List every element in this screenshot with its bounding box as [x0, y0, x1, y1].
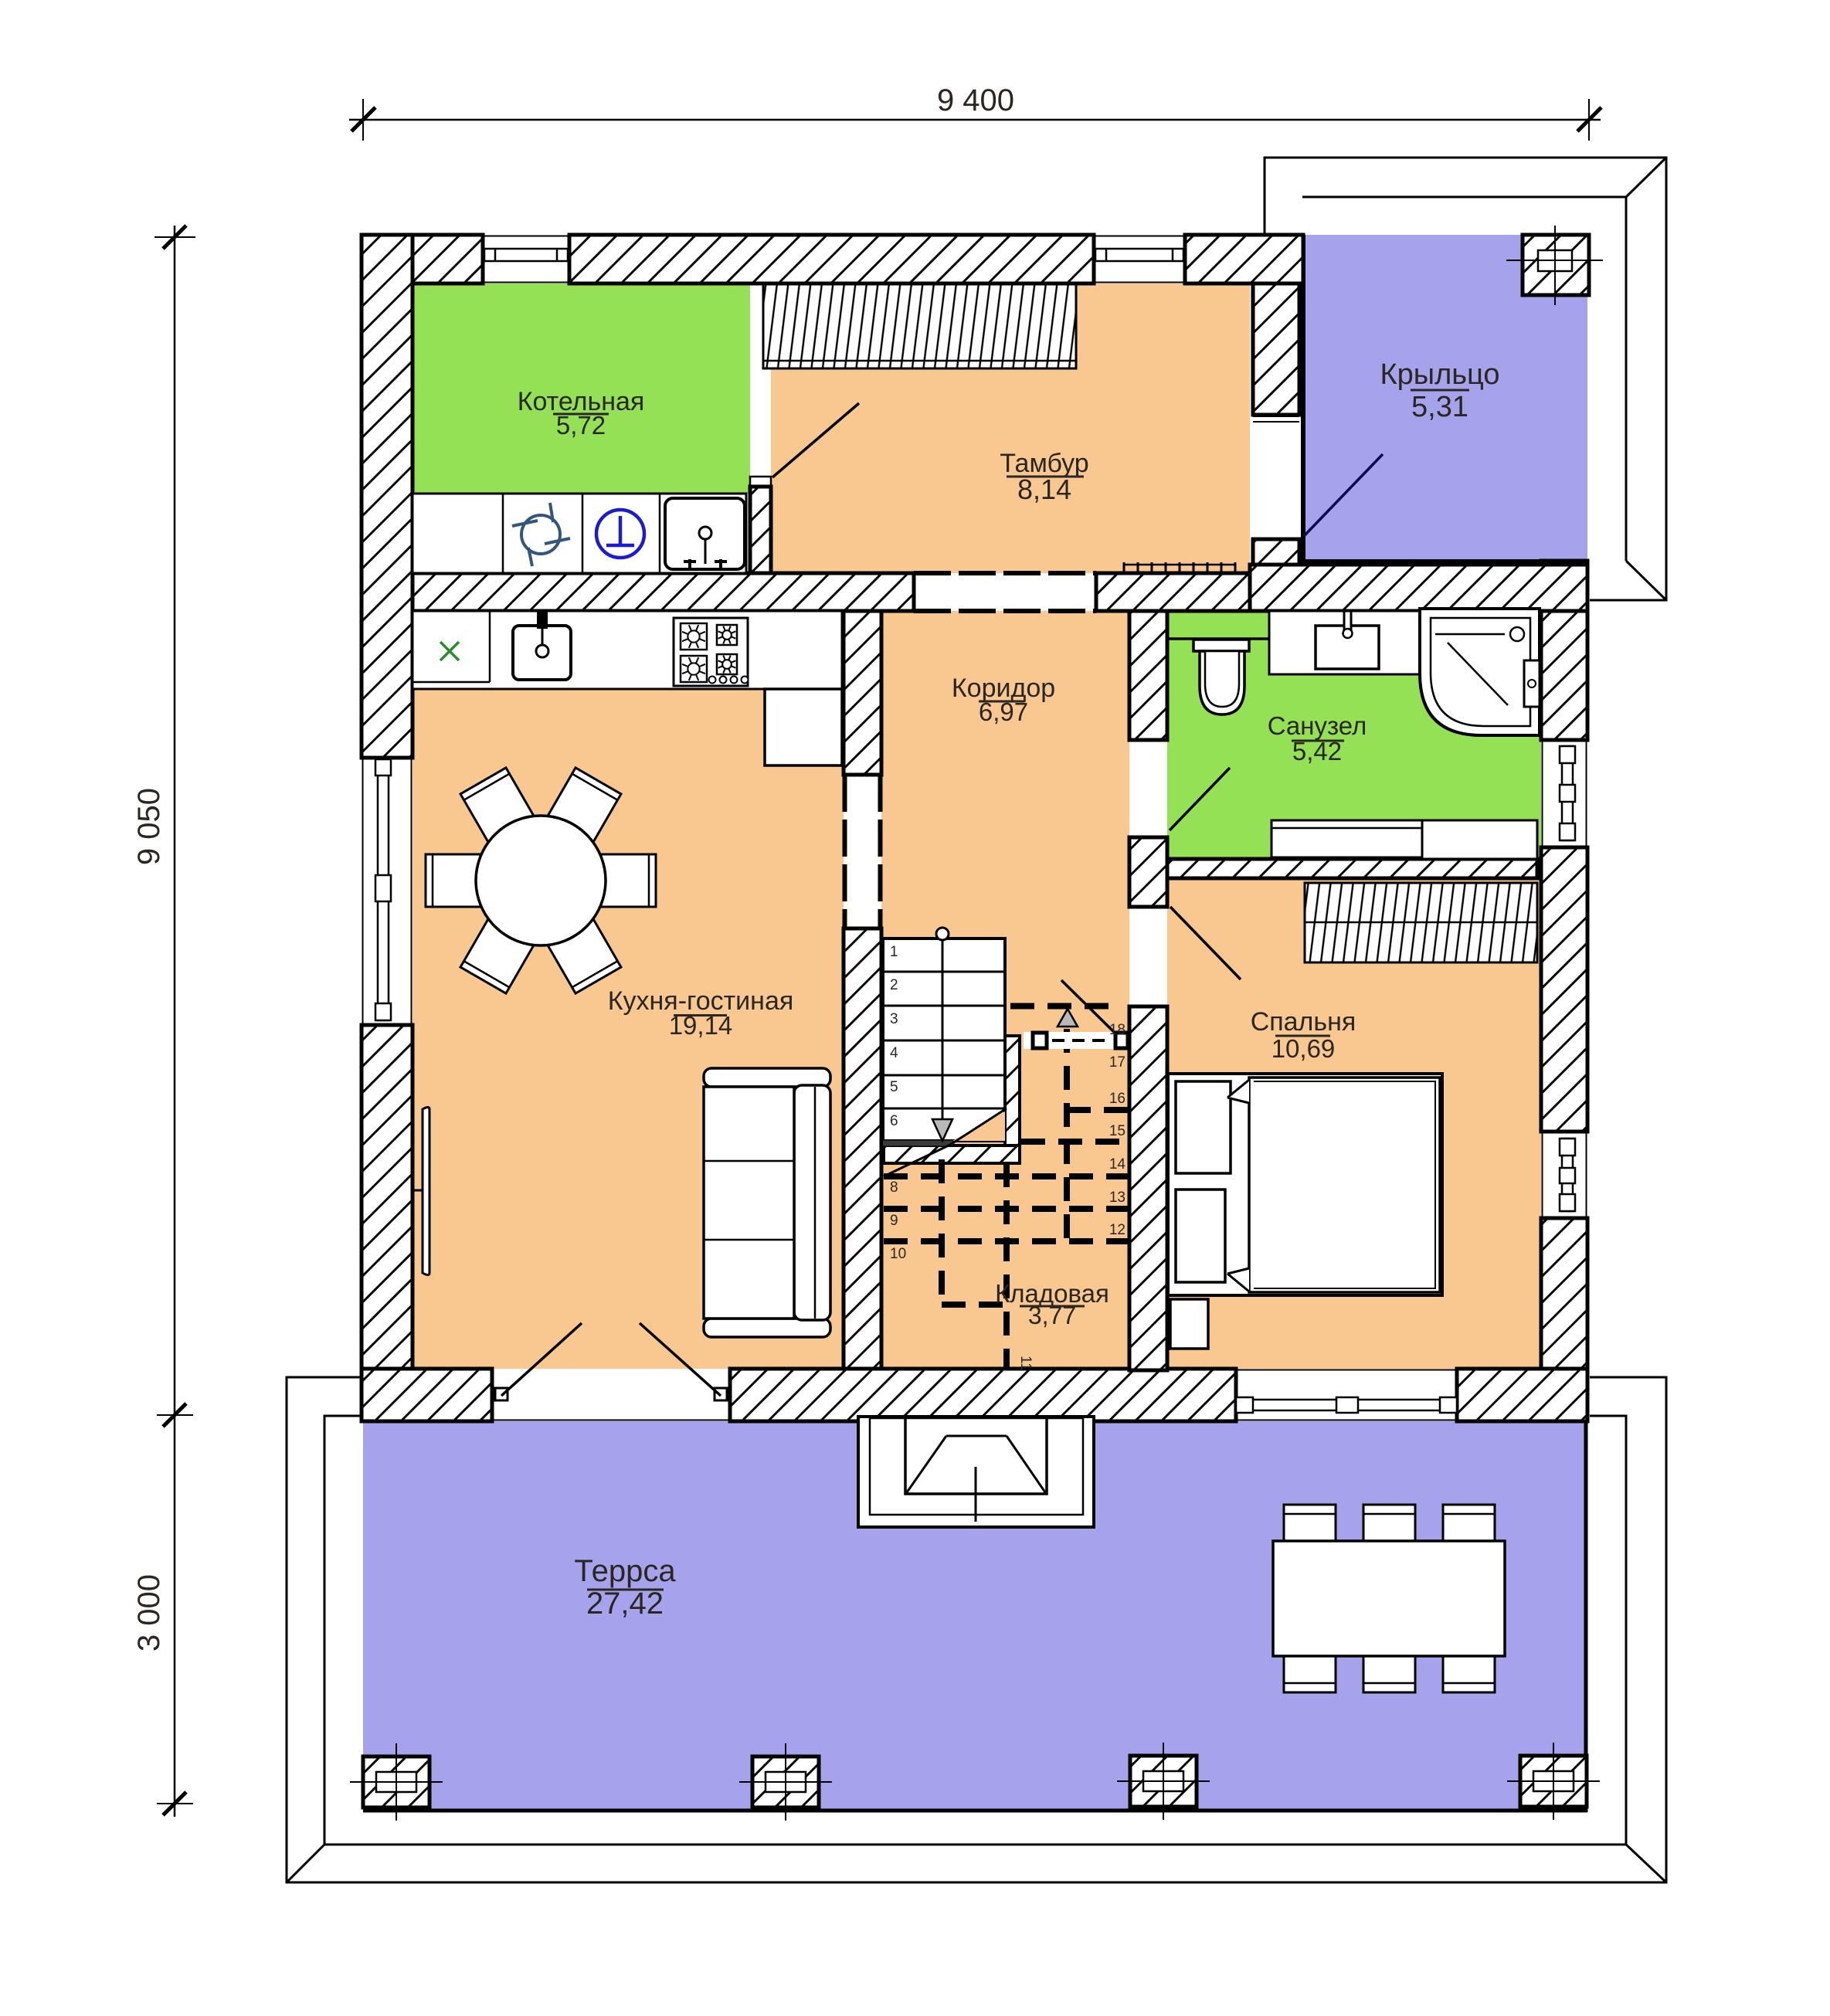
svg-text:5,42: 5,42 — [1292, 737, 1342, 765]
svg-text:3 000: 3 000 — [132, 1574, 166, 1651]
svg-text:Крыльцо: Крыльцо — [1380, 358, 1499, 391]
svg-text:18: 18 — [1109, 1022, 1126, 1038]
svg-text:8: 8 — [890, 1179, 898, 1196]
svg-text:3: 3 — [890, 1011, 898, 1027]
svg-text:12: 12 — [1109, 1222, 1126, 1238]
svg-text:3,77: 3,77 — [1028, 1302, 1076, 1329]
svg-text:13: 13 — [1109, 1190, 1126, 1206]
svg-text:10,69: 10,69 — [1271, 1034, 1336, 1063]
svg-text:4: 4 — [890, 1045, 898, 1061]
svg-text:15: 15 — [1109, 1123, 1126, 1139]
svg-text:14: 14 — [1109, 1156, 1126, 1173]
svg-text:1: 1 — [890, 944, 898, 960]
svg-text:5,72: 5,72 — [556, 411, 606, 440]
svg-text:10: 10 — [890, 1246, 906, 1262]
svg-text:Спальня: Спальня — [1251, 1007, 1356, 1037]
svg-text:8,14: 8,14 — [1017, 473, 1071, 505]
svg-text:6,97: 6,97 — [979, 697, 1028, 726]
svg-text:9: 9 — [890, 1213, 898, 1229]
svg-text:19,14: 19,14 — [669, 1011, 733, 1040]
svg-text:Террса: Террса — [574, 1554, 676, 1588]
svg-text:2: 2 — [890, 977, 898, 993]
svg-text:17: 17 — [1109, 1054, 1126, 1071]
svg-text:11: 11 — [1017, 1356, 1034, 1371]
svg-text:Санузел: Санузел — [1268, 711, 1367, 740]
svg-text:27,42: 27,42 — [586, 1587, 664, 1621]
svg-text:16: 16 — [1109, 1091, 1126, 1107]
svg-text:5: 5 — [890, 1079, 898, 1095]
svg-text:6: 6 — [890, 1113, 898, 1129]
svg-text:5,31: 5,31 — [1411, 391, 1468, 423]
svg-text:9 400: 9 400 — [937, 83, 1014, 117]
svg-text:9 050: 9 050 — [132, 788, 166, 865]
